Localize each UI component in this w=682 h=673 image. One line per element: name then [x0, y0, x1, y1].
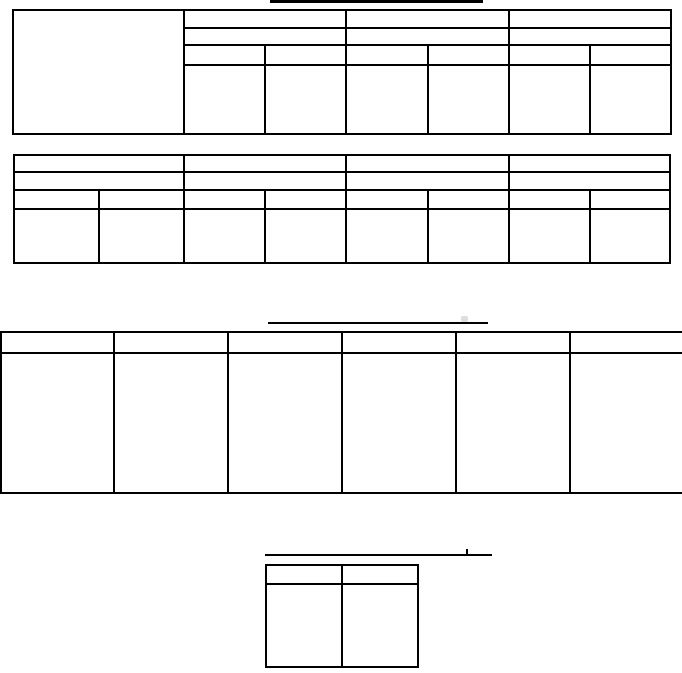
table3-column-header-cell [342, 332, 456, 353]
table1-data-cell [184, 65, 265, 134]
table2-column-header-cell [184, 190, 265, 209]
table2-subgroup-cell [184, 172, 346, 190]
table1-subgroup-cell [346, 28, 509, 45]
table3-data-cell [114, 353, 228, 493]
table1-column-header-cell [590, 45, 671, 65]
table2-middle-grid [13, 154, 671, 264]
table1-data-cell [346, 65, 428, 134]
table4-data-cell [342, 584, 418, 667]
table2-data-cell [184, 209, 265, 263]
section-title-underline-bottom [265, 554, 492, 556]
table4-column-header-cell [342, 565, 418, 584]
stroke-remnant-tick [466, 549, 468, 555]
table2-group-header-cell [184, 155, 346, 172]
table2-column-header-cell [99, 190, 184, 209]
table2-column-header-cell [346, 190, 428, 209]
table1-subgroup-cell [509, 28, 671, 45]
table2-data-cell [509, 209, 590, 263]
table3-data-cell [570, 353, 682, 493]
table1-group-header-cell [184, 10, 346, 28]
table2-data-cell [99, 209, 184, 263]
table3-column-header-cell [456, 332, 570, 353]
scanned-form-page [0, 0, 682, 673]
section-title-underline [268, 322, 488, 324]
table3-data-cell [342, 353, 456, 493]
table3-data-cell [1, 353, 114, 493]
table4-column-header-cell [266, 565, 342, 584]
table2-group-header-cell [14, 155, 184, 172]
table1-data-cell [265, 65, 346, 134]
table1-data-cell [509, 65, 590, 134]
table3-column-header-cell [570, 332, 682, 353]
table2-column-header-cell [509, 190, 590, 209]
table2-group-header-cell [509, 155, 670, 172]
table2-data-cell [14, 209, 99, 263]
table1-data-cell [428, 65, 509, 134]
table2-subgroup-cell [14, 172, 184, 190]
table3-column-header-cell [114, 332, 228, 353]
table1-group-header-cell [509, 10, 671, 28]
table2-subgroup-cell [346, 172, 509, 190]
table2-group-header-cell [346, 155, 509, 172]
table4-data-cell [266, 584, 342, 667]
scan-artifact-mark [461, 316, 468, 322]
table2-data-cell [265, 209, 346, 263]
table1-subgroup-cell [184, 28, 346, 45]
table4-small-grid [265, 564, 419, 668]
table2-column-header-cell [14, 190, 99, 209]
table3-wide-grid [0, 331, 682, 494]
table3-column-header-cell [228, 332, 342, 353]
table1-data-cell [590, 65, 671, 134]
table3-column-header-cell [1, 332, 114, 353]
table1-column-header-cell [346, 45, 428, 65]
table1-left-label-cell [13, 10, 184, 134]
table1-group-header-cell [346, 10, 509, 28]
table1-top-grid [12, 9, 672, 135]
table1-column-header-cell [184, 45, 265, 65]
page-title-underline [270, 0, 483, 3]
table2-subgroup-cell [509, 172, 670, 190]
table2-column-header-cell [590, 190, 670, 209]
table1-column-header-cell [265, 45, 346, 65]
table1-column-header-cell [509, 45, 590, 65]
table3-data-cell [456, 353, 570, 493]
table2-column-header-cell [265, 190, 346, 209]
table1-column-header-cell [428, 45, 509, 65]
table2-data-cell [428, 209, 509, 263]
table3-data-cell [228, 353, 342, 493]
table2-data-cell [590, 209, 670, 263]
table2-column-header-cell [428, 190, 509, 209]
table2-data-cell [346, 209, 428, 263]
